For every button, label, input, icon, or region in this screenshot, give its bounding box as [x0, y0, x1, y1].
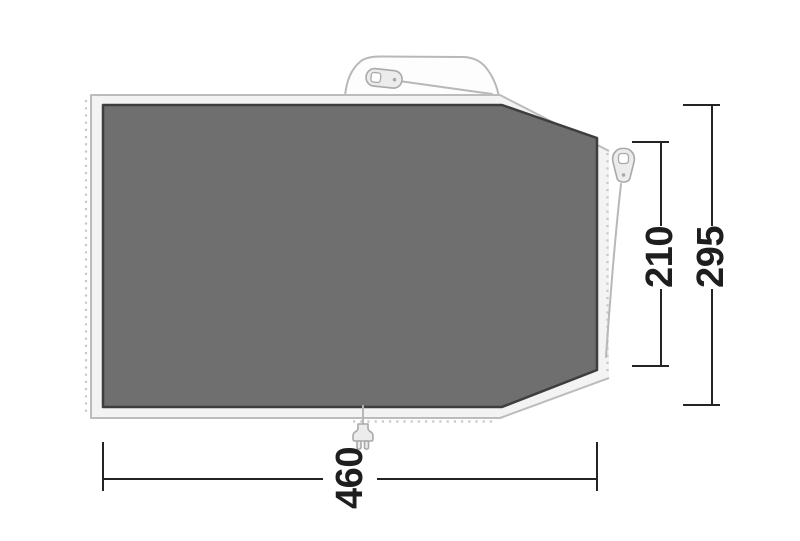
dimension-right-inner-height: 210 [632, 142, 681, 366]
zipper-pull-icon-right [606, 148, 634, 357]
right-zipper-pull-rivet [622, 173, 626, 177]
plug-body [353, 424, 373, 441]
dimension-bottom-width: 460 [103, 442, 597, 509]
tent-floor-panel [103, 105, 597, 407]
footprint-diagram: 210 295 460 [0, 0, 800, 541]
dimension-right-outer-height: 295 [683, 105, 732, 405]
dim-460-label: 460 [329, 447, 371, 509]
carry-handle-icon [345, 57, 499, 98]
zipper-pull-hole [371, 72, 381, 82]
right-zipper-pull-hole [619, 154, 629, 164]
dim-210-label: 210 [639, 226, 681, 288]
zipper-pull-icon [365, 68, 403, 89]
dim-295-label: 295 [690, 226, 732, 288]
diagram-canvas: 210 295 460 [0, 0, 800, 541]
